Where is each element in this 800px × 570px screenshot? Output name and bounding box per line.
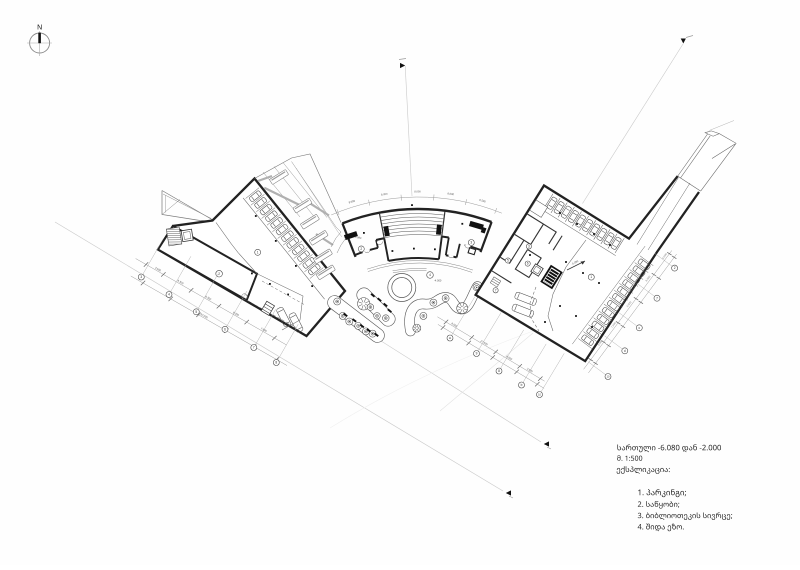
svg-text:3: 3	[470, 241, 472, 245]
svg-text:8.000: 8.000	[414, 189, 421, 193]
svg-text:5: 5	[507, 259, 509, 263]
svg-text:4: 4	[429, 273, 431, 277]
svg-text:1: 1	[590, 275, 592, 279]
svg-text:d: d	[624, 349, 626, 353]
svg-text:7: 7	[253, 346, 255, 350]
svg-text:1: 1	[257, 250, 259, 254]
svg-text:b: b	[521, 383, 523, 387]
svg-text:6: 6	[224, 327, 226, 331]
svg-text:2: 2	[674, 266, 676, 270]
svg-text:5: 5	[195, 310, 197, 314]
svg-text:-4.000: -4.000	[434, 279, 442, 283]
svg-text:8: 8	[275, 361, 277, 365]
svg-text:N: N	[37, 25, 42, 32]
svg-text:7: 7	[495, 288, 497, 292]
svg-text:2: 2	[360, 247, 362, 251]
svg-text:9: 9	[476, 352, 478, 356]
svg-text:2: 2	[218, 272, 220, 276]
svg-text:4: 4	[168, 293, 170, 297]
svg-text:7: 7	[656, 296, 658, 300]
svg-text:3: 3	[140, 275, 142, 279]
svg-text:3: 3	[528, 244, 530, 248]
svg-text:8: 8	[498, 369, 500, 373]
svg-text:6: 6	[527, 262, 529, 266]
